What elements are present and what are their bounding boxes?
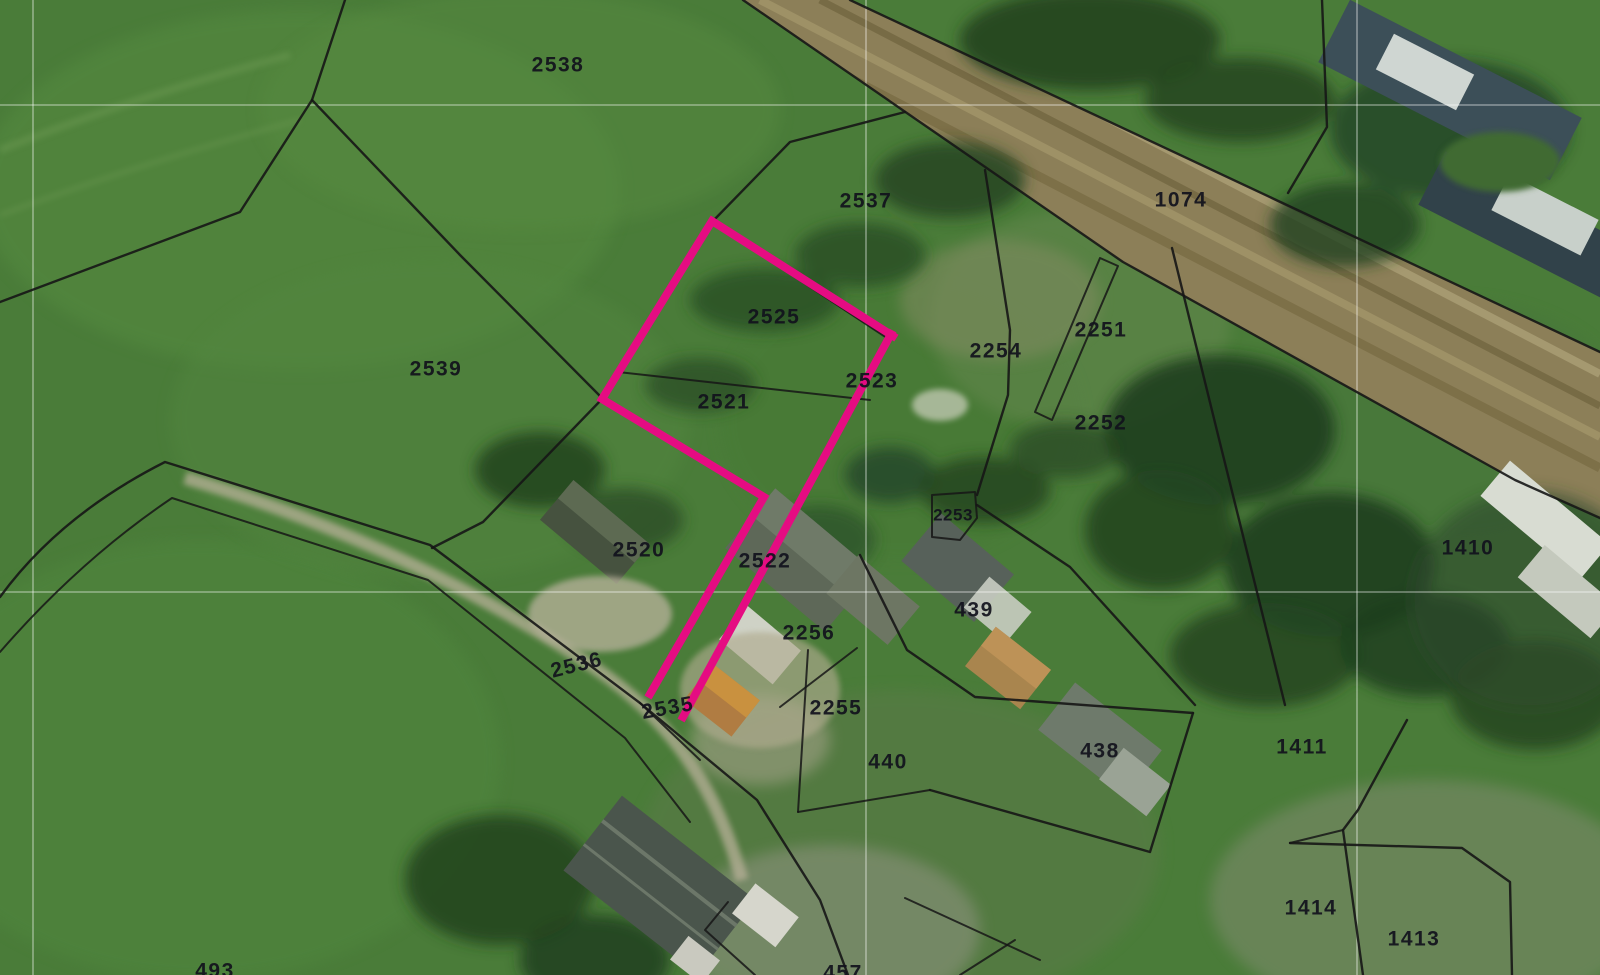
parcel-label-2255: 2255	[810, 697, 863, 720]
parcel-label-2254: 2254	[970, 340, 1023, 363]
parcel-label-457: 457	[823, 962, 863, 975]
parcel-label-1410: 1410	[1442, 537, 1495, 560]
parcel-label-2521: 2521	[698, 391, 751, 414]
parcel-label-2520: 2520	[613, 539, 666, 562]
parcel-label-2525: 2525	[748, 306, 801, 329]
parcel-label-439: 439	[954, 599, 994, 622]
parcel-label-2256: 2256	[783, 622, 836, 645]
parcel-label-2523: 2523	[846, 370, 899, 393]
parcel-label-1414: 1414	[1285, 897, 1338, 920]
parcel-label-2522: 2522	[739, 550, 792, 573]
parcel-label-440: 440	[868, 751, 908, 774]
parcel-label-1411: 1411	[1276, 736, 1328, 759]
parcel-label-2537: 2537	[840, 190, 893, 213]
parcel-label-2252: 2252	[1075, 412, 1128, 435]
parcel-label-493: 493	[195, 960, 235, 975]
parcel-label-2251: 2251	[1075, 319, 1128, 342]
parcel-label-2538: 2538	[532, 54, 585, 77]
parcel-label-1413: 1413	[1388, 928, 1441, 951]
parcel-label-2253: 2253	[933, 505, 973, 524]
map-viewport[interactable]: 2538253710742525225122542539252325212252…	[0, 0, 1600, 975]
parcel-label-2539: 2539	[410, 358, 463, 381]
parcel-label-1074: 1074	[1155, 189, 1208, 212]
parcel-label-438: 438	[1080, 740, 1120, 763]
